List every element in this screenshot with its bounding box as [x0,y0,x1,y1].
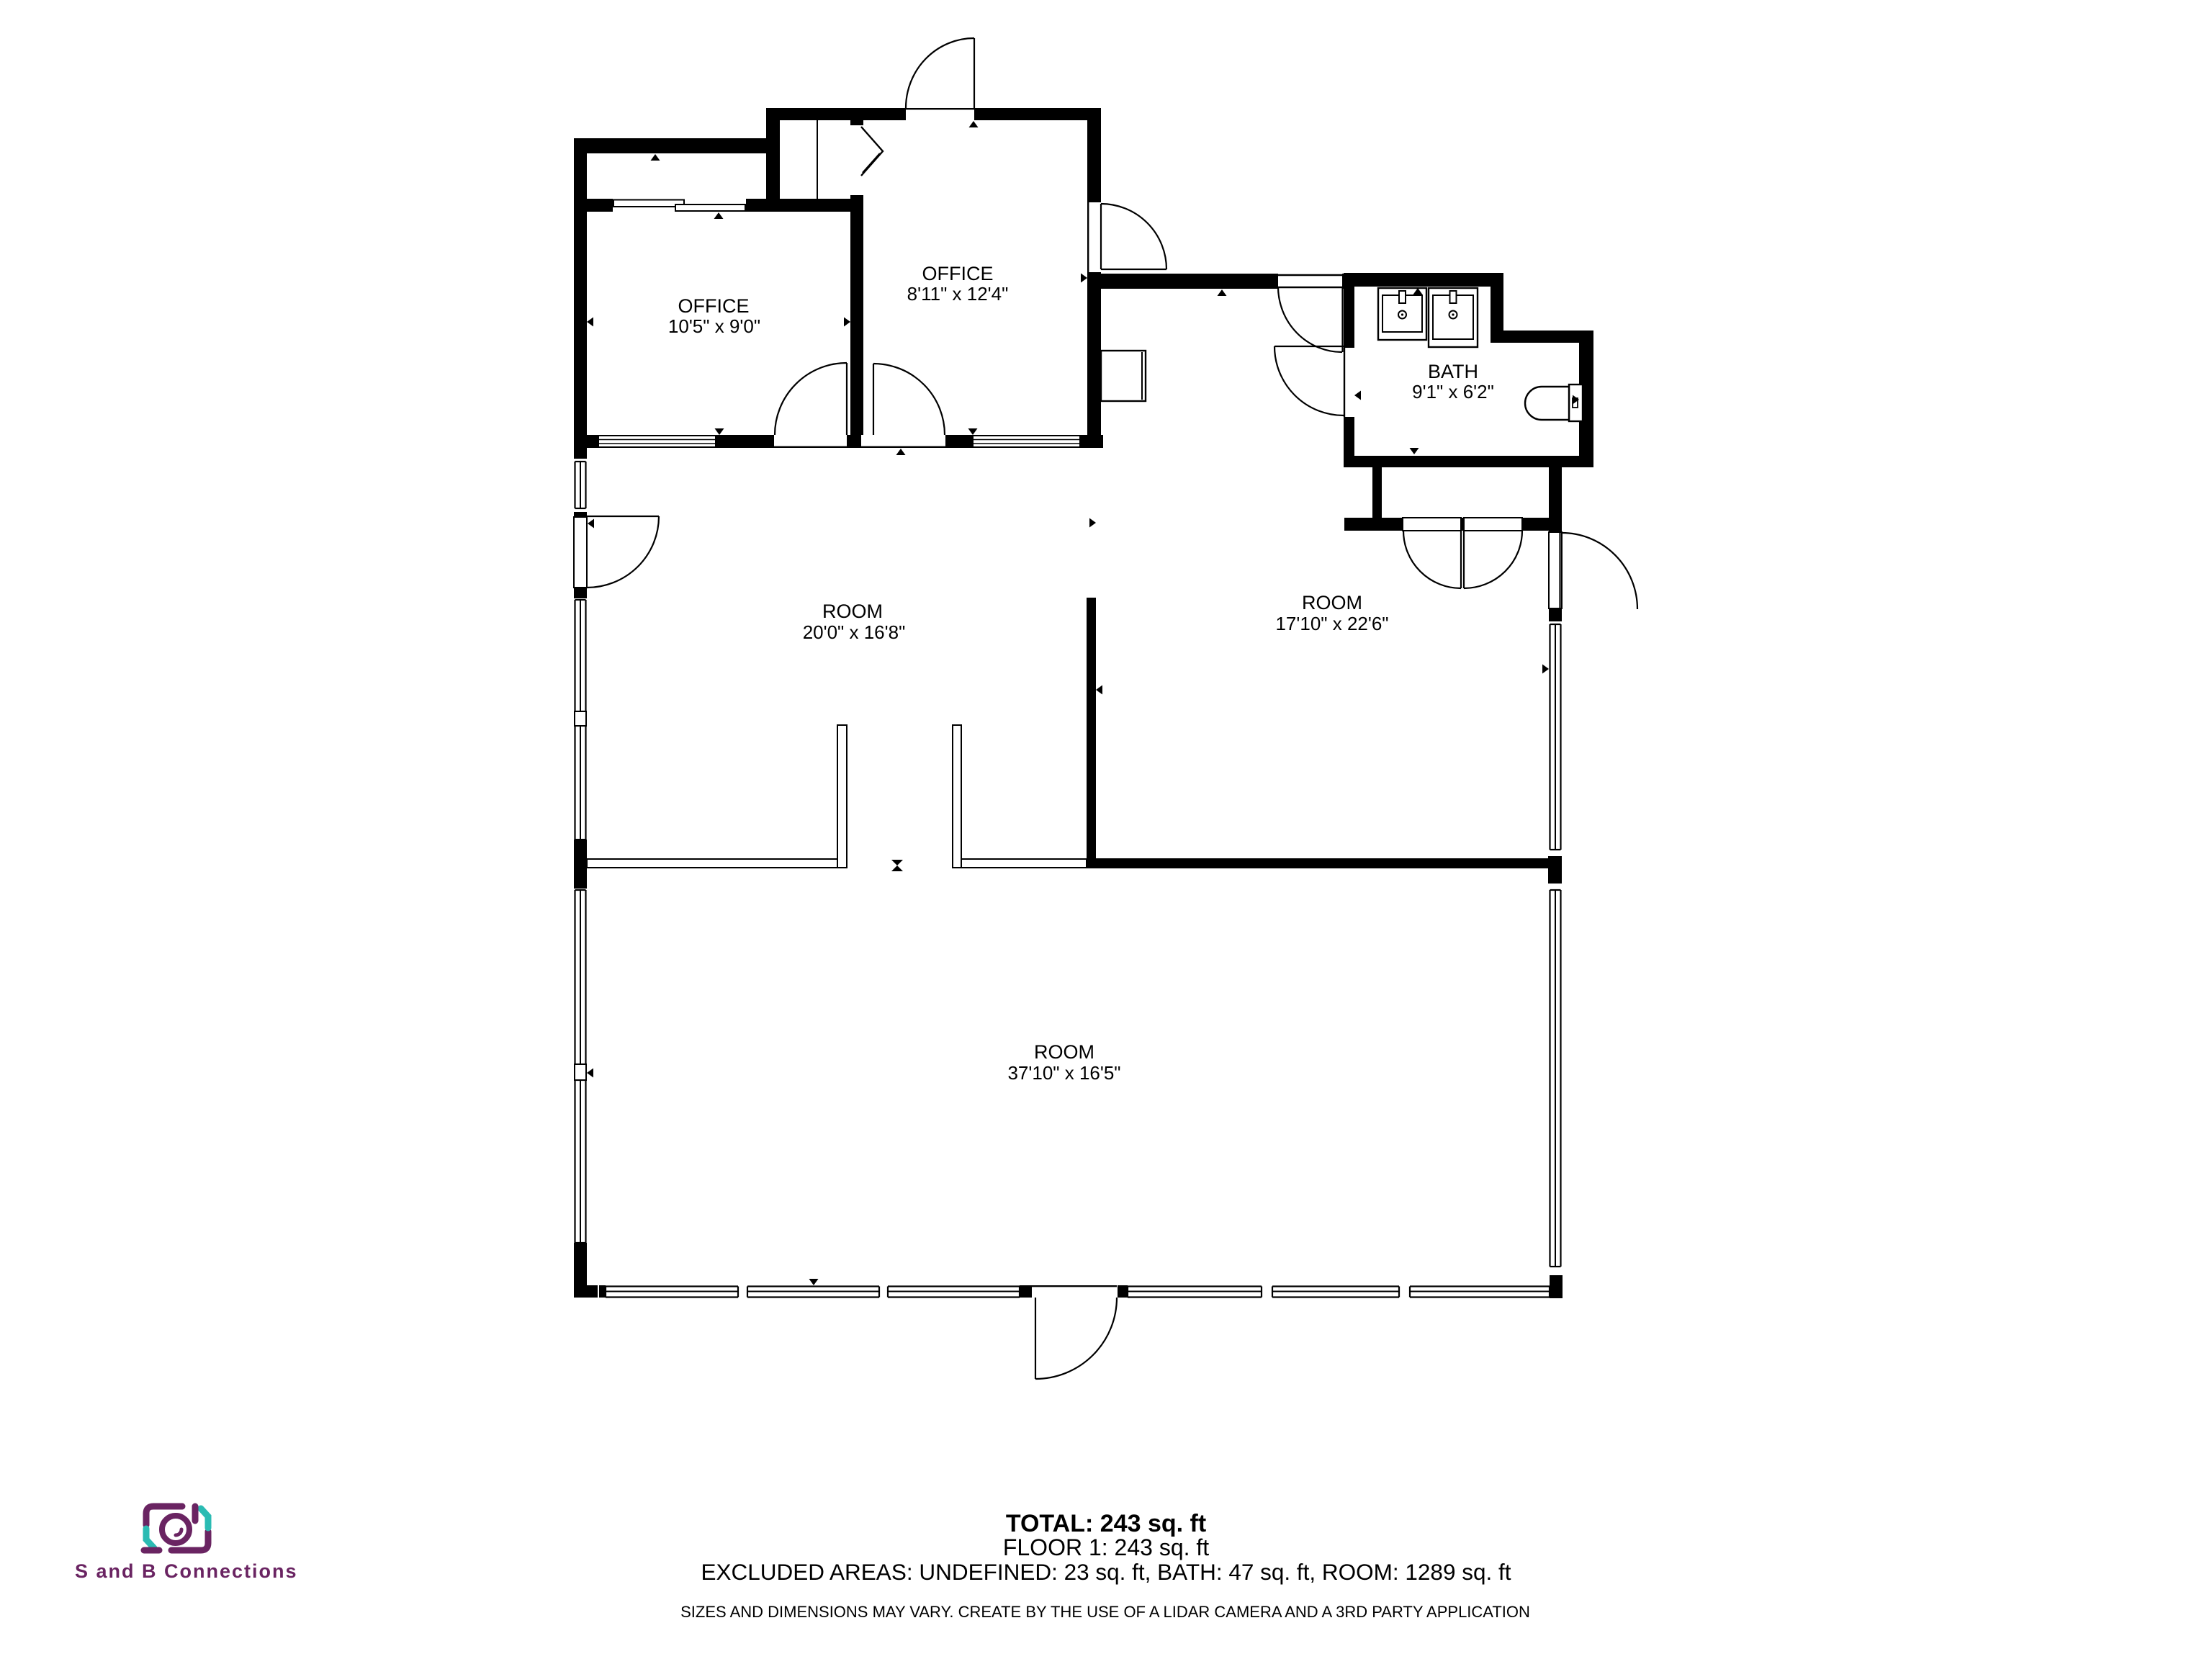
svg-text:SIZES AND DIMENSIONS MAY VARY.: SIZES AND DIMENSIONS MAY VARY. CREATE BY… [680,1603,1530,1621]
svg-text:37'10" x 16'5": 37'10" x 16'5" [1007,1062,1120,1084]
svg-text:ROOM: ROOM [1034,1041,1094,1063]
svg-text:17'10" x 22'6": 17'10" x 22'6" [1275,613,1388,634]
svg-text:ROOM: ROOM [822,601,883,622]
svg-text:EXCLUDED AREAS: UNDEFINED: 23: EXCLUDED AREAS: UNDEFINED: 23 sq. ft, BA… [701,1559,1511,1585]
svg-text:9'1" x 6'2": 9'1" x 6'2" [1412,381,1494,403]
svg-text:FLOOR 1: 243 sq. ft: FLOOR 1: 243 sq. ft [1003,1534,1209,1560]
svg-text:S and B Connections: S and B Connections [75,1560,298,1582]
svg-text:BATH: BATH [1428,361,1478,382]
svg-text:OFFICE: OFFICE [922,263,994,284]
svg-text:ROOM: ROOM [1302,592,1362,613]
svg-text:8'11" x 12'4": 8'11" x 12'4" [907,283,1009,305]
svg-text:OFFICE: OFFICE [678,295,750,317]
svg-text:10'5" x 9'0": 10'5" x 9'0" [668,315,760,337]
svg-text:TOTAL: 243 sq. ft: TOTAL: 243 sq. ft [1006,1510,1206,1537]
svg-text:20'0" x 16'8": 20'0" x 16'8" [803,621,906,643]
